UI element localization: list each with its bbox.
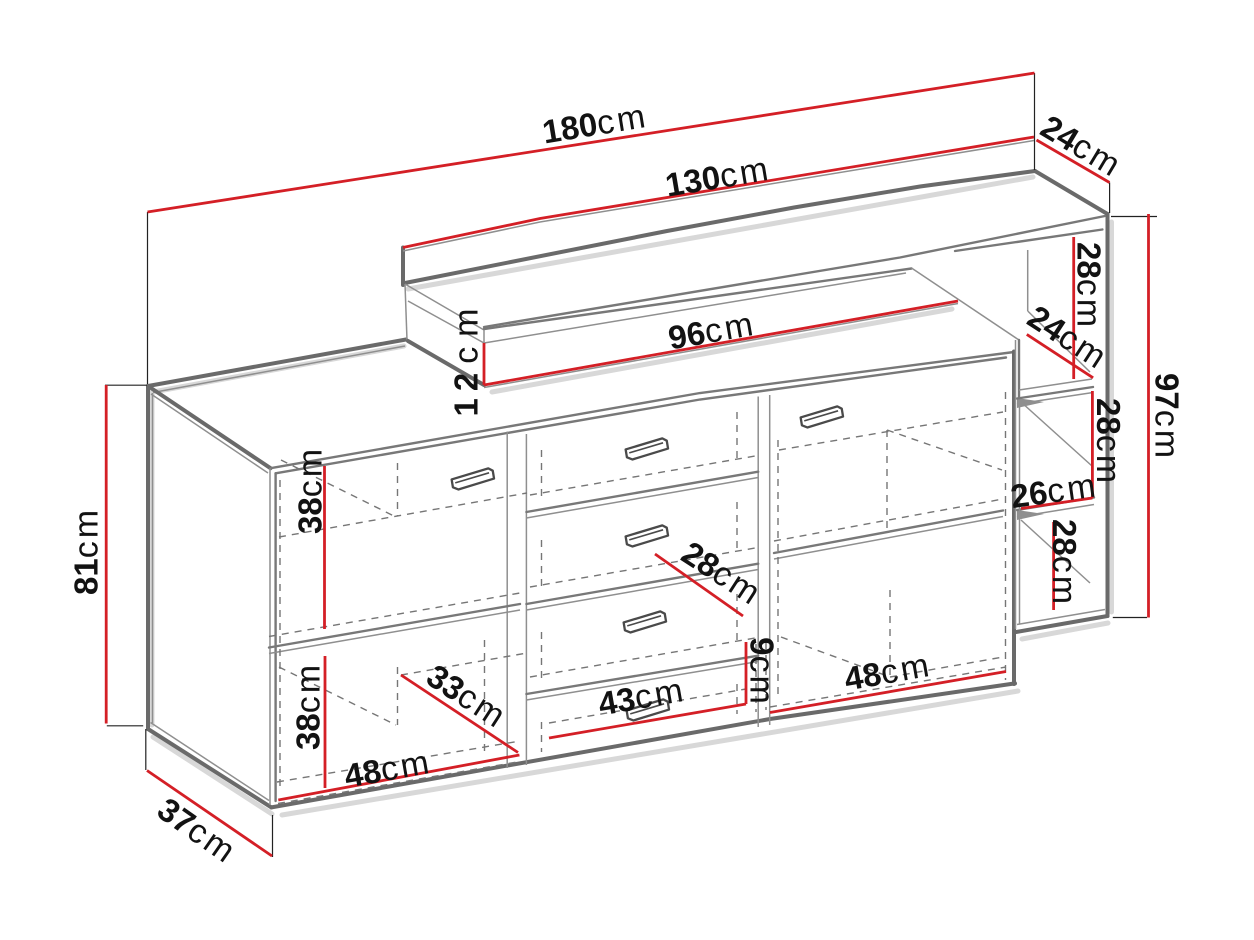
svg-text:28cm: 28cm	[1045, 519, 1083, 607]
svg-text:9cm: 9cm	[743, 637, 781, 707]
svg-text:12cm: 12cm	[448, 305, 486, 416]
svg-text:38cm: 38cm	[292, 446, 330, 534]
svg-text:97cm: 97cm	[1148, 373, 1186, 461]
svg-text:81cm: 81cm	[68, 507, 106, 595]
svg-text:38cm: 38cm	[290, 662, 328, 750]
svg-text:28cm: 28cm	[1070, 242, 1108, 330]
